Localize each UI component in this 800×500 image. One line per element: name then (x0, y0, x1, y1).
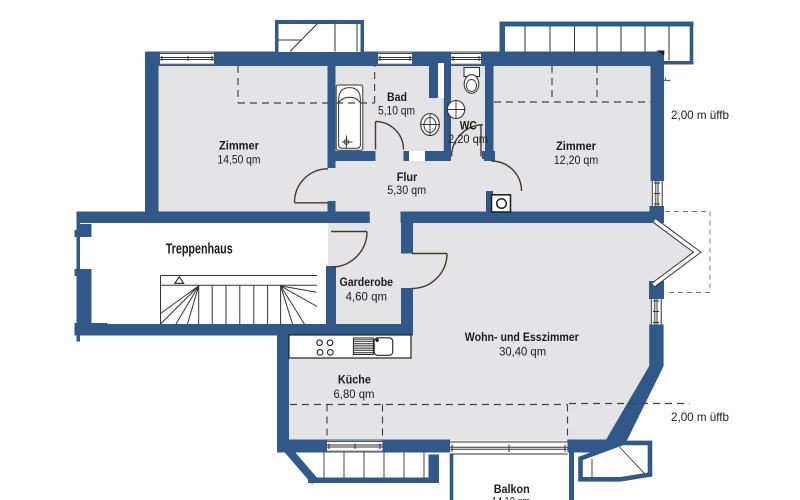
svg-text:Küche: Küche (338, 372, 371, 386)
svg-text:6,80 qm: 6,80 qm (334, 387, 375, 401)
svg-text:WC: WC (460, 118, 477, 132)
svg-text:12,20 qm: 12,20 qm (554, 153, 599, 167)
svg-text:2,00 m üffb: 2,00 m üffb (671, 108, 729, 122)
svg-text:Zimmer: Zimmer (219, 139, 259, 153)
svg-text:2,00 m üffb: 2,00 m üffb (671, 410, 729, 424)
svg-text:Zimmer: Zimmer (556, 139, 596, 153)
svg-text:4,60 qm: 4,60 qm (346, 290, 388, 304)
svg-text:Garderobe: Garderobe (340, 275, 394, 289)
svg-text:5,30 qm: 5,30 qm (387, 183, 426, 197)
svg-text:Treppenhaus: Treppenhaus (166, 242, 233, 258)
svg-text:Flur: Flur (397, 170, 418, 184)
svg-text:30,40 qm: 30,40 qm (499, 345, 546, 359)
svg-text:14,10 qm: 14,10 qm (492, 495, 530, 500)
svg-text:2,20 qm: 2,20 qm (448, 132, 488, 146)
svg-text:5,10 qm: 5,10 qm (378, 103, 415, 117)
svg-text:14,50 qm: 14,50 qm (218, 153, 261, 167)
svg-text:Wohn- und Esszimmer: Wohn- und Esszimmer (465, 330, 579, 344)
svg-text:Bad: Bad (387, 90, 407, 104)
